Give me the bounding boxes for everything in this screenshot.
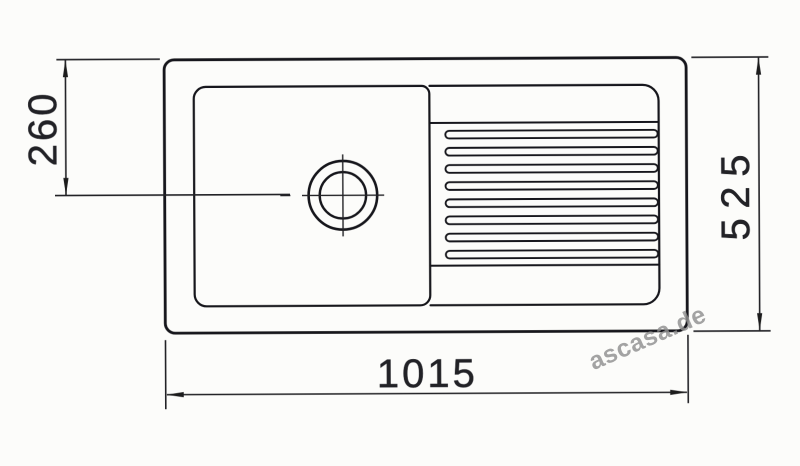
svg-text:525: 525 bbox=[714, 145, 758, 241]
svg-text:260: 260 bbox=[21, 90, 65, 166]
svg-text:1015: 1015 bbox=[377, 352, 478, 396]
